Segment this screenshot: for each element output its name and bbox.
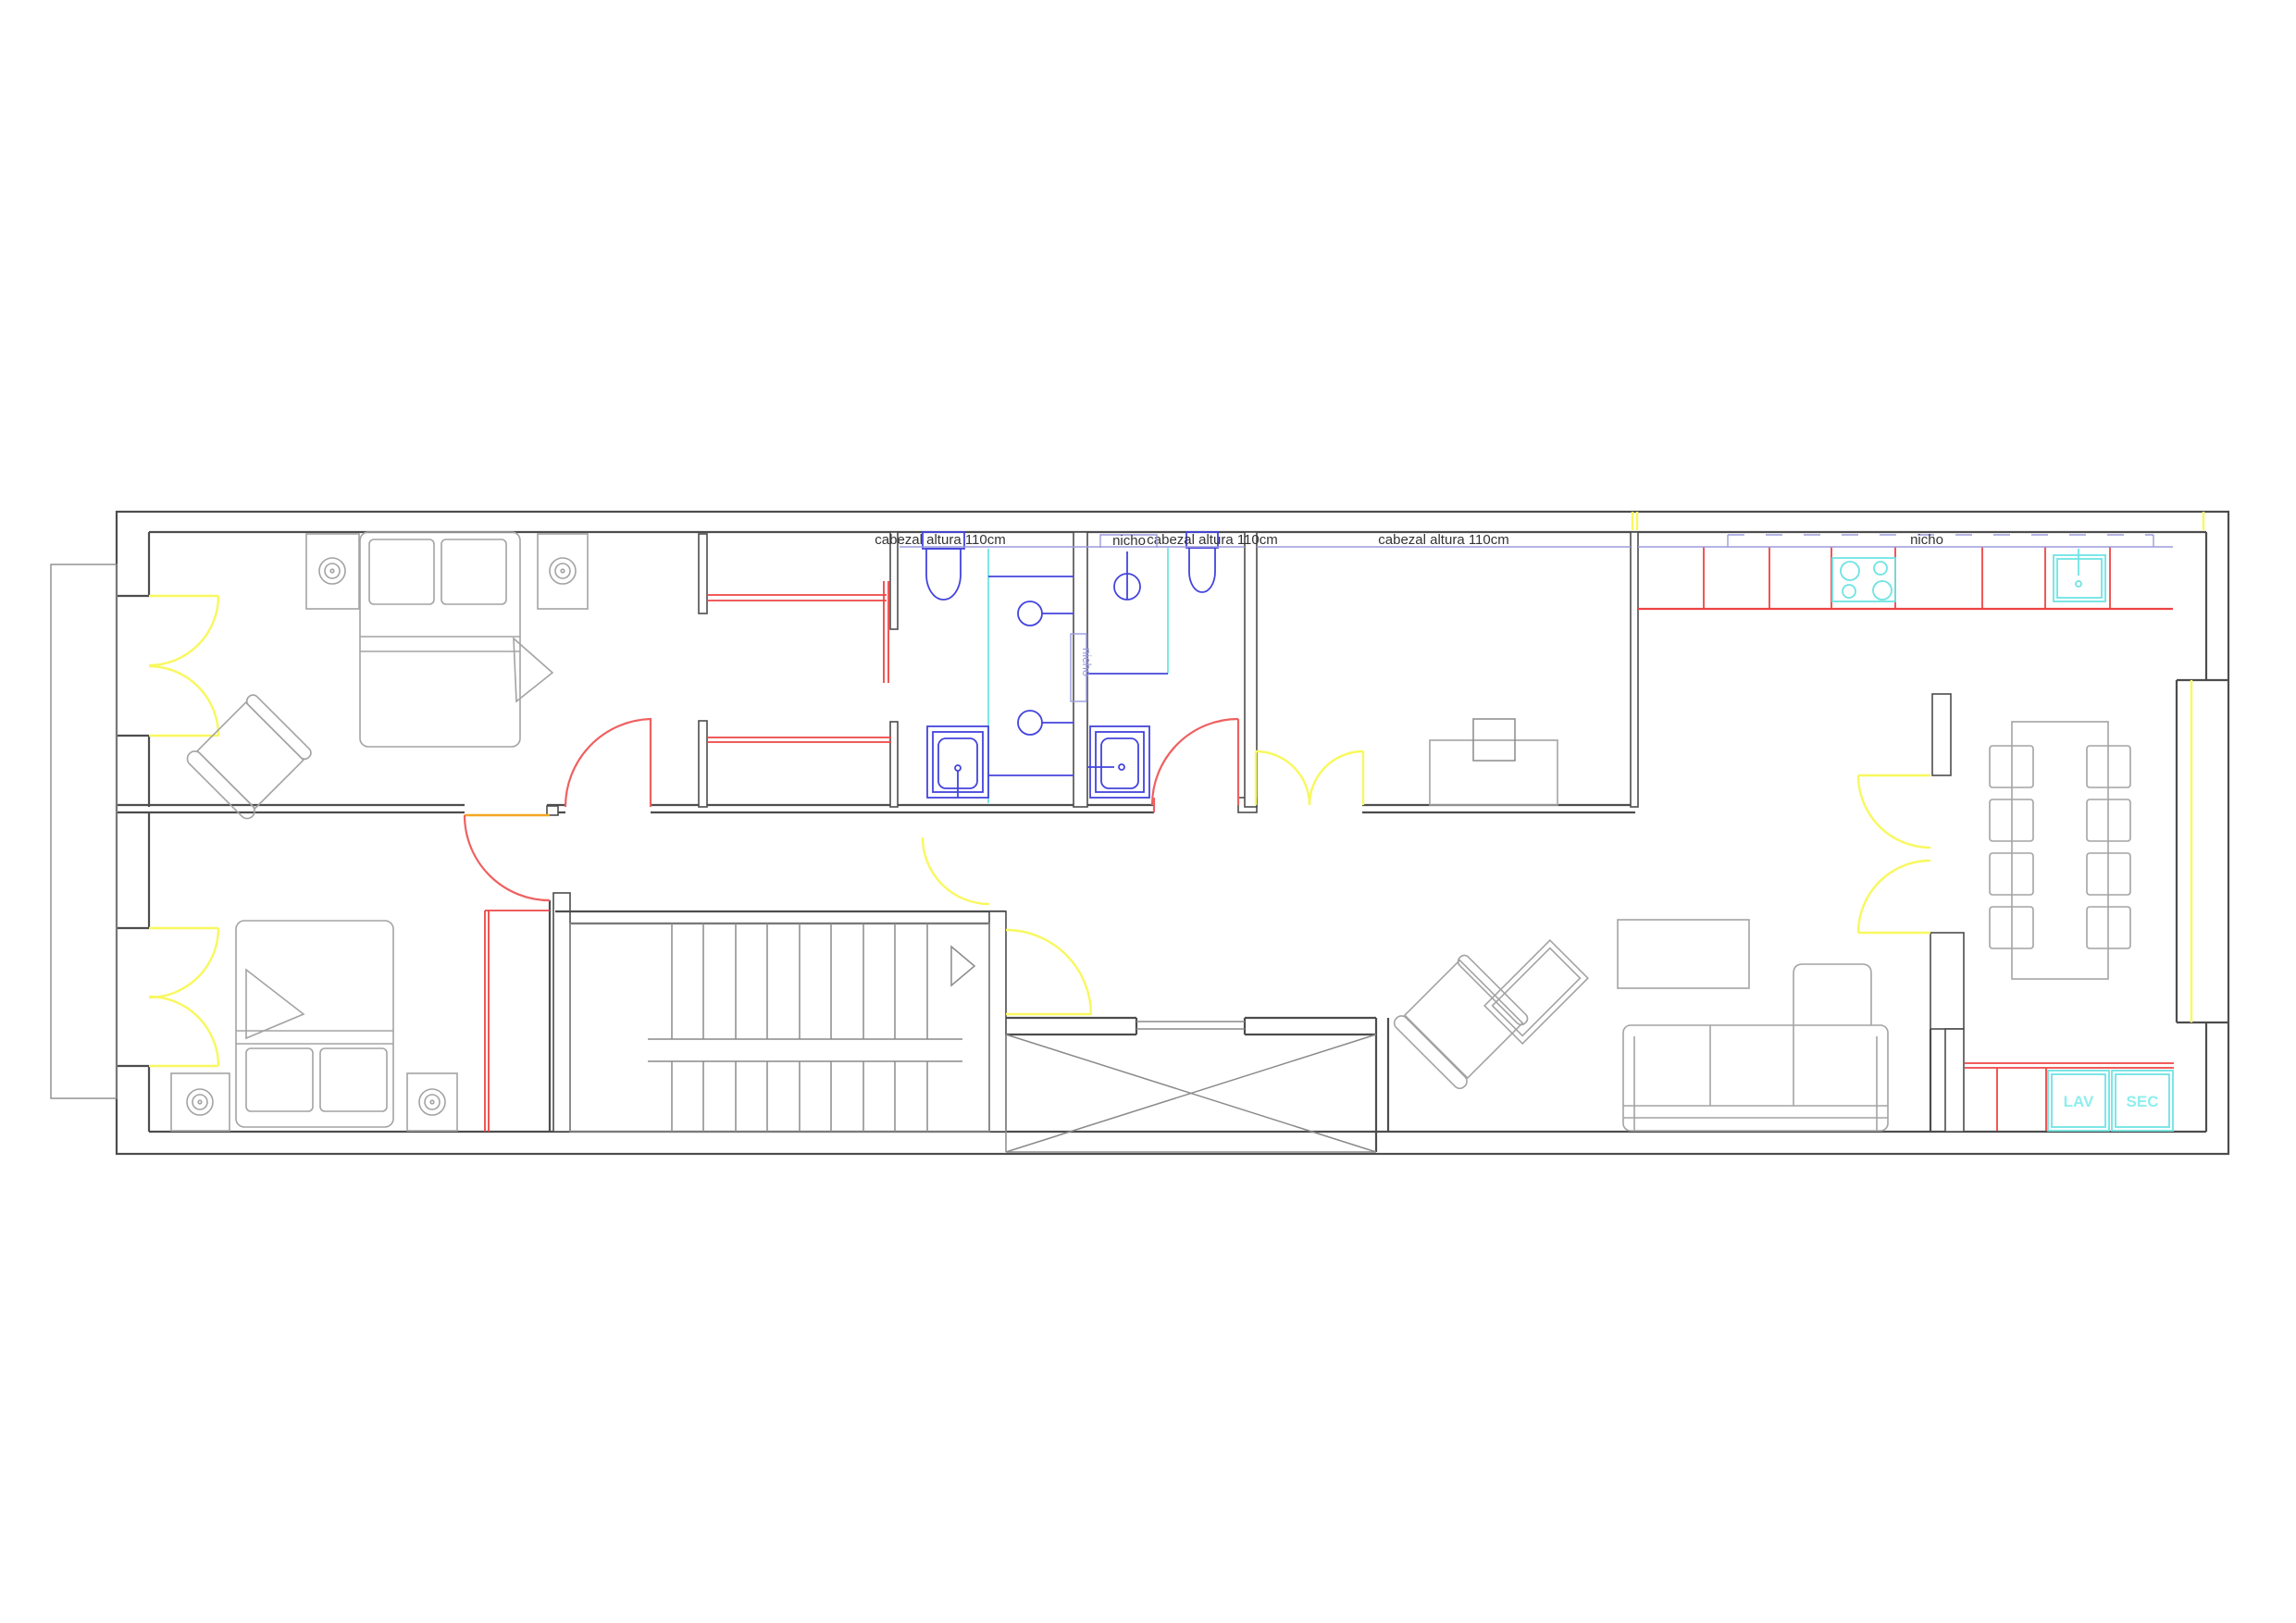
stair-well: [570, 923, 989, 1132]
sofa: [1623, 964, 1888, 1131]
pillow: [320, 1048, 387, 1111]
floor-plan-page: LAV SEC cabezal altura 110cm cabezal alt…: [0, 0, 2296, 1623]
pillar-upper: [1932, 694, 1951, 775]
corridor-door: [923, 837, 1091, 1015]
headboard-label-mid: cabezal altura 110cm: [1147, 532, 1277, 548]
chaise-lounge: [1793, 964, 1871, 1025]
built-in-wardrobe: [485, 911, 550, 1132]
master-balcony-double-door: [149, 596, 218, 736]
floor-plan-drawing: LAV SEC cabezal altura 110cm cabezal alt…: [0, 0, 2296, 1623]
shower-head-icon: [1018, 711, 1074, 735]
laundry-area: LAV SEC: [1965, 1063, 2174, 1131]
sink-icon: [1087, 726, 1149, 798]
headboard-label-left: cabezal altura 110cm: [875, 532, 1005, 548]
bathroom-2: [1087, 532, 1218, 798]
master-bedroom-door: [565, 718, 651, 807]
desk: [1430, 740, 1558, 805]
lamp-icon: [550, 558, 576, 584]
nightstand: [171, 1073, 230, 1131]
pillow: [441, 539, 506, 604]
niche-wall-label: nicho: [1080, 648, 1094, 676]
kitchen-sink-icon: [2054, 549, 2105, 601]
dining-table: [2012, 722, 2108, 979]
pillow: [246, 1048, 313, 1111]
stair-direction-arrow-icon: [951, 947, 974, 985]
armchair: [184, 691, 315, 822]
dining-area: [1990, 722, 2130, 979]
living-dining-double-door: [1858, 775, 1930, 933]
nightstand: [407, 1073, 457, 1131]
lamp-icon: [187, 1089, 213, 1115]
lamp-icon: [419, 1089, 445, 1115]
pillow: [369, 539, 434, 604]
dryer-label: SEC: [2127, 1093, 2159, 1110]
headboard-label-right: cabezal altura 110cm: [1378, 532, 1508, 548]
annotations: cabezal altura 110cm cabezal altura 110c…: [875, 532, 2173, 701]
bathroom2-door: [1152, 719, 1238, 805]
coffee-table: [1618, 920, 1749, 988]
nightstand: [306, 534, 359, 609]
bathroom-1: [923, 532, 1074, 803]
niche-kitchen-label: nicho: [1910, 532, 1943, 548]
cabinet-dividers: [1704, 547, 2110, 609]
window-glazing-marks: [1632, 512, 2203, 1022]
dryer-icon: SEC: [2112, 1071, 2173, 1131]
bedroom-3: [1430, 719, 1558, 805]
walkin-closet: [707, 581, 891, 742]
wall-end-cap: [547, 806, 558, 815]
washer-icon: LAV: [2048, 1071, 2109, 1131]
dining-chairs: [1990, 746, 2130, 948]
bedroom2-door: [465, 815, 550, 900]
armchair: [1392, 952, 1532, 1092]
living-room: [1392, 920, 1888, 1131]
niche-bath-label: nicho: [1112, 533, 1146, 549]
interior-walls: [118, 532, 1964, 1132]
master-bedroom: [184, 532, 588, 822]
red-doors: [465, 718, 1238, 900]
bedroom-2: [171, 911, 550, 1132]
ottoman: [1484, 940, 1588, 1044]
staircase: [555, 911, 1006, 1132]
sink-icon: [927, 726, 988, 798]
stair-treads-lower: [672, 1061, 927, 1132]
double-bed: [236, 921, 393, 1127]
nightstand: [538, 534, 588, 609]
bedroom3-double-door: [1256, 751, 1363, 805]
stove-icon: [1832, 558, 1895, 601]
pedestal-sink-icon: [1114, 551, 1140, 600]
niche-kitchen-bracket: nicho: [1638, 532, 2173, 548]
balcony-outline: [51, 564, 117, 1098]
pillar-lower: [1930, 933, 1964, 1029]
balcony: [51, 564, 117, 1098]
lamp-icon: [319, 558, 345, 584]
double-bed: [360, 532, 520, 747]
shower-head-icon: [1018, 601, 1074, 626]
washer-label: LAV: [2064, 1093, 2094, 1110]
stair-treads-upper: [672, 923, 927, 1039]
sheet-fold: [246, 970, 304, 1038]
bedroom2-balcony-double-door: [149, 928, 218, 1066]
kitchen: [1638, 547, 2173, 609]
